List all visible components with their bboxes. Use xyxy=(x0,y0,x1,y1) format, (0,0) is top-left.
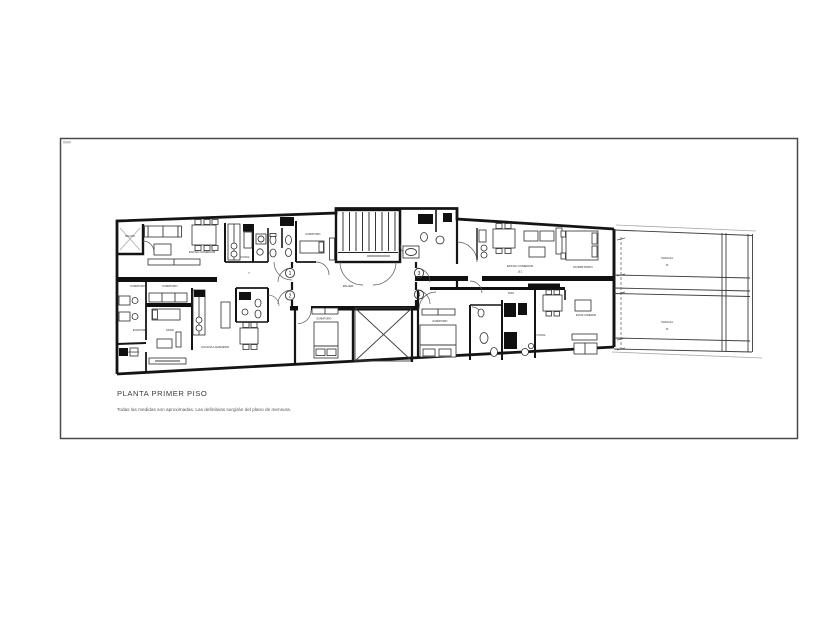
unit-badge: 2 xyxy=(289,294,292,300)
room-label: PASO xyxy=(508,292,514,295)
wall-band xyxy=(117,277,217,282)
room-label: DORMITORIO xyxy=(317,319,332,321)
room-label: DORMITORIO xyxy=(131,286,146,288)
plan-note: Todas las medidas son aproximadas. Las d… xyxy=(117,407,291,412)
room-label: 30 xyxy=(666,265,669,267)
room-label: DORMITORIO xyxy=(433,321,448,323)
unit-badge: 3 xyxy=(418,271,421,277)
room-label: DORMITORIO xyxy=(573,265,593,269)
room-label: PALIER xyxy=(343,284,354,288)
plan-title: PLANTA PRIMER PISO xyxy=(117,389,207,398)
room-label: ESTAR COMEDOR xyxy=(507,264,534,268)
interior-walls xyxy=(117,209,614,373)
air-shaft xyxy=(355,308,412,362)
staircase xyxy=(338,212,398,256)
furniture-unit2 xyxy=(119,290,338,364)
room-label: COCINA xyxy=(537,334,546,337)
room-label: 30 xyxy=(666,329,669,331)
room-label: ESTAR xyxy=(166,329,174,332)
unit-badge: 4 xyxy=(418,293,421,299)
room-label: TERRAZA xyxy=(661,256,673,260)
room-label: BALCON xyxy=(125,235,135,238)
room-label: 16.2 xyxy=(518,272,523,274)
room-label: ESTAR COMEDOR xyxy=(189,250,216,254)
drawing-sheet: 1 2 3 4 BALCON ESTAR COMEDOR COCINA DORM… xyxy=(0,0,840,630)
unit-badges: 1 2 3 4 xyxy=(285,268,423,300)
corner-artifact xyxy=(63,141,71,143)
room-label: COCINA LAVADERO xyxy=(201,345,230,349)
room-label: ESTAR COMEDOR xyxy=(576,314,596,317)
floor-plan-canvas: 1 2 3 4 BALCON ESTAR COMEDOR COCINA DORM… xyxy=(0,0,840,630)
dimension-mark: 7 xyxy=(248,271,250,275)
room-label: COCINA xyxy=(241,256,250,259)
core-bathroom xyxy=(403,213,452,258)
room-label: DORMITORIO xyxy=(306,234,321,236)
room-label: DORMITORIO xyxy=(163,286,178,288)
room-label: ESCRITORIO xyxy=(133,330,147,332)
furniture-unit4 xyxy=(420,290,597,357)
room-label: LAVADERO xyxy=(127,351,139,354)
furniture-unit1 xyxy=(120,217,335,265)
room-label: TERRAZA xyxy=(661,320,673,324)
unit-badge: 1 xyxy=(289,271,292,277)
terraces xyxy=(612,225,762,358)
